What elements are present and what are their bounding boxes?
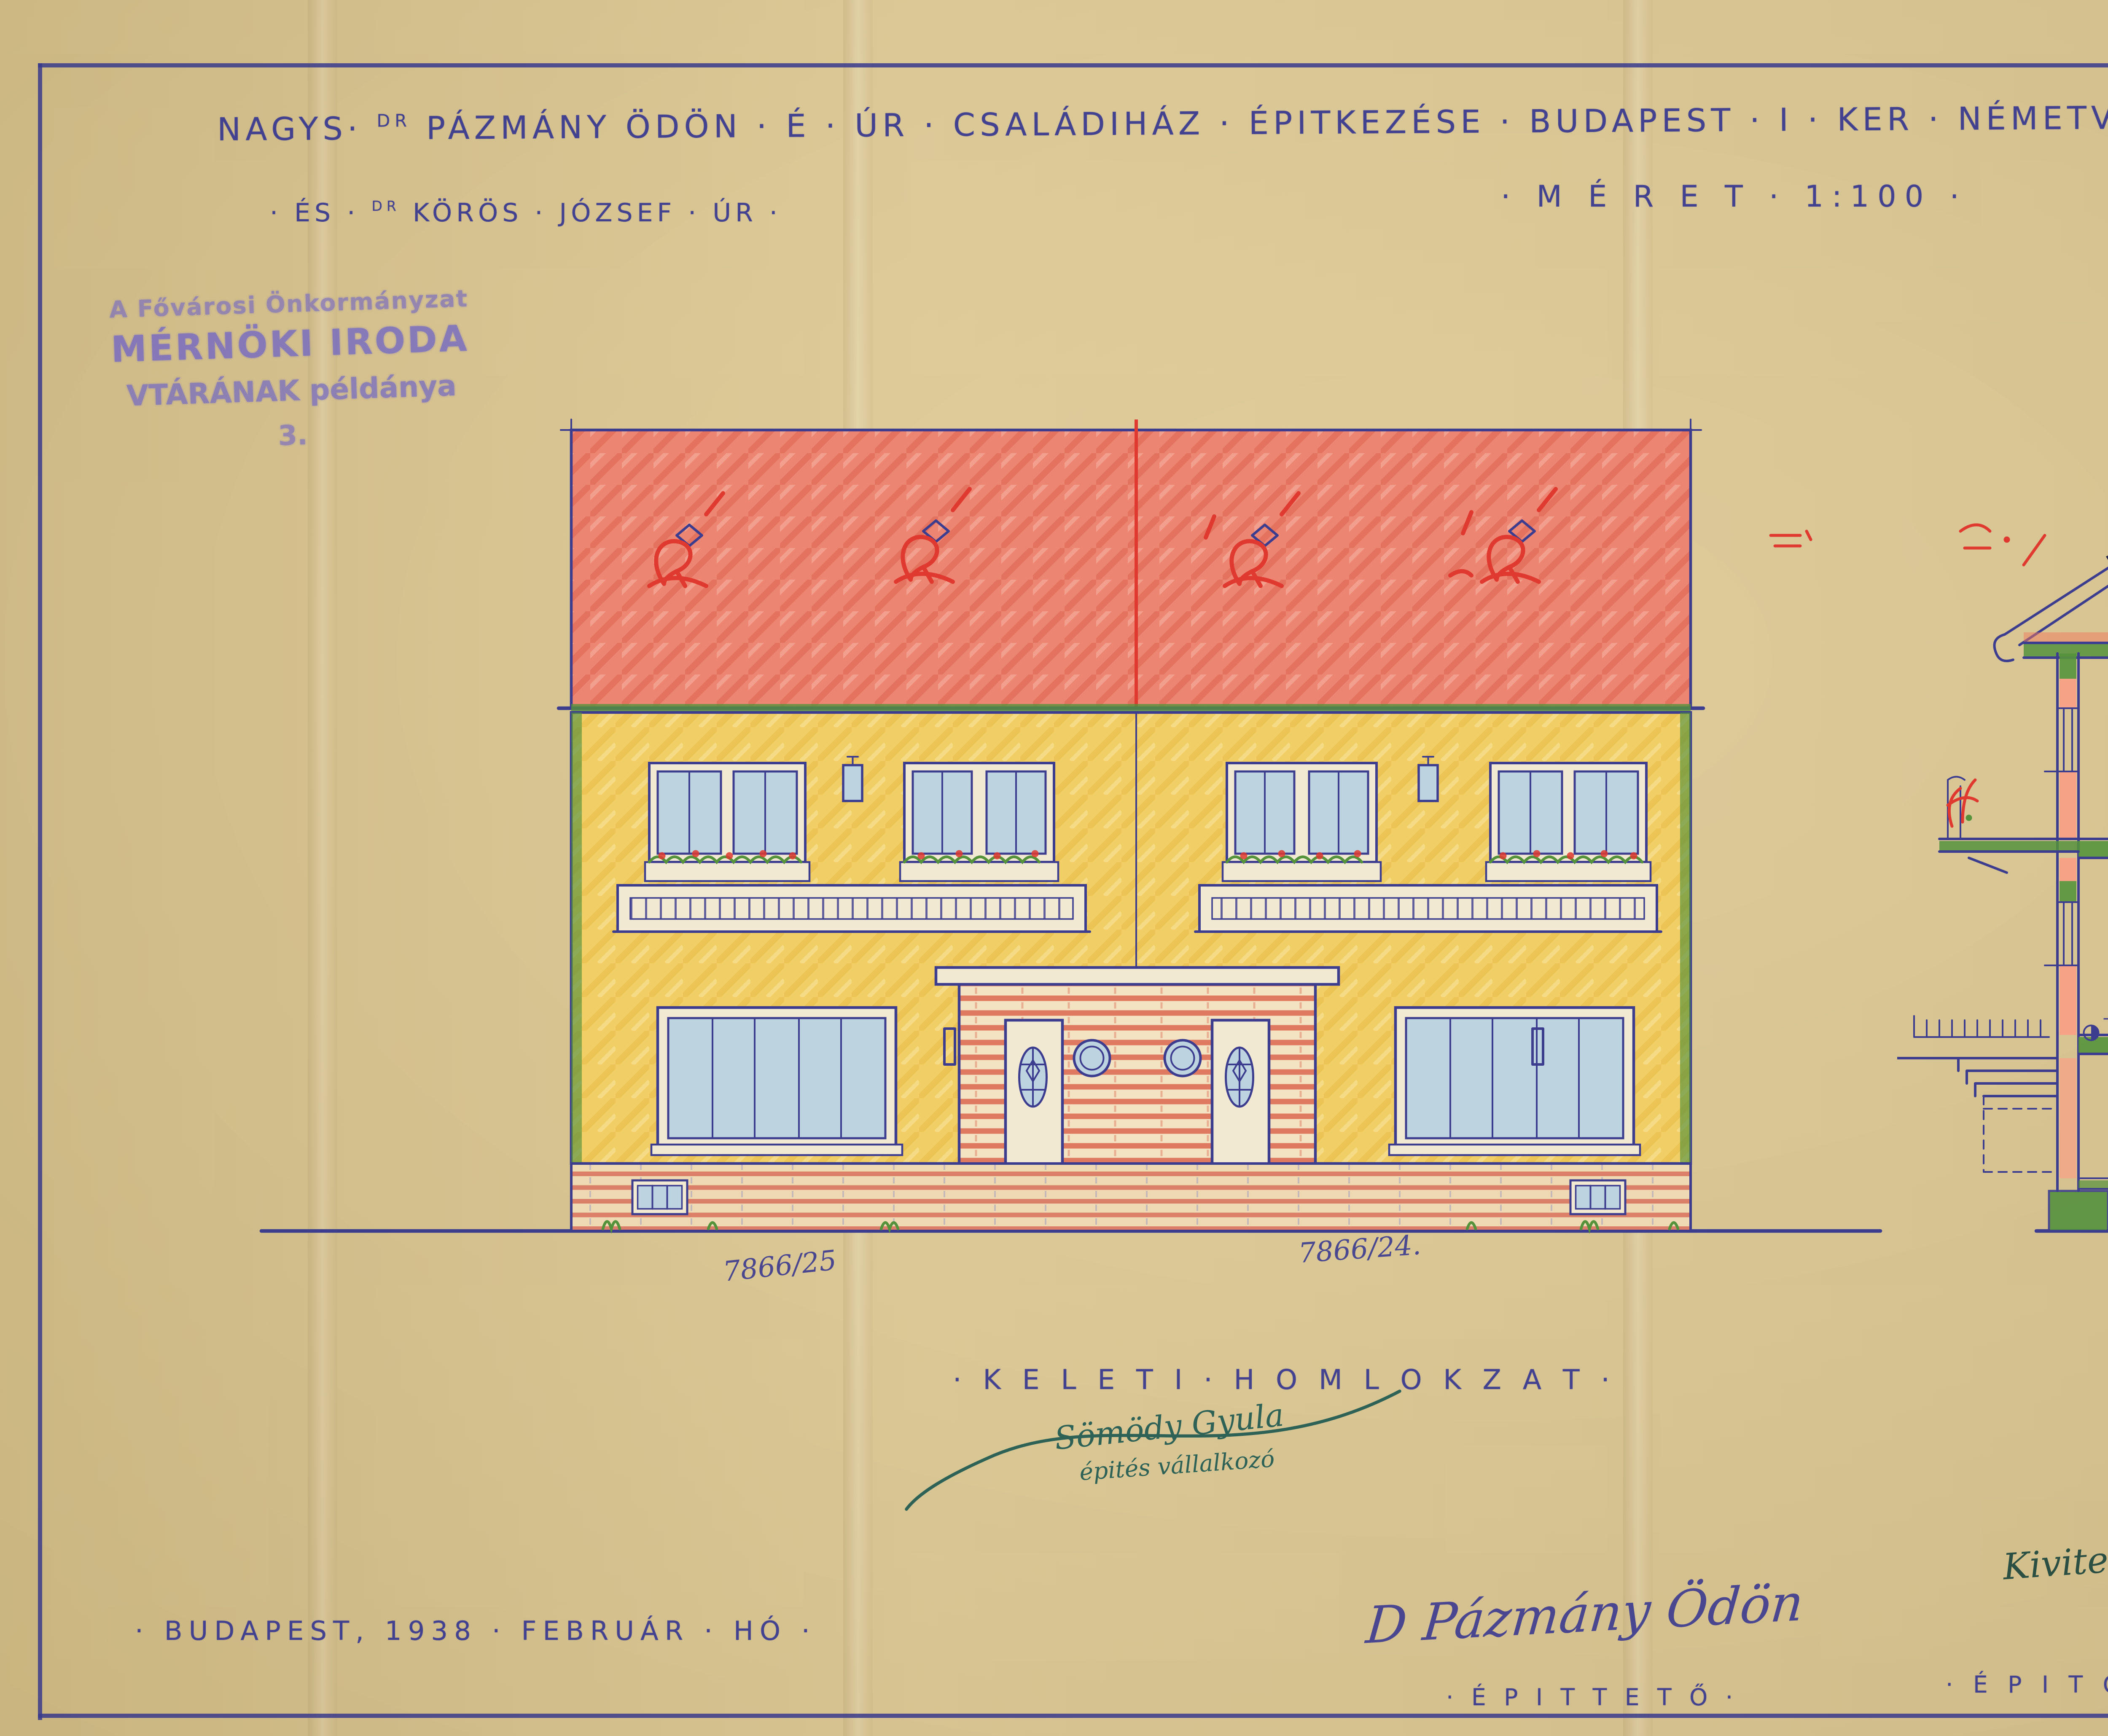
- client-role: · É P I T T E T Ő ·: [1446, 1684, 1738, 1712]
- red-check-mark: [1767, 527, 1813, 556]
- title-line-2: · ÉS · DR KÖRÖS · JÓZSEF · ÚR ·: [270, 198, 782, 228]
- title-line2-rest: KÖRÖS · JÓZSEF · ÚR ·: [413, 198, 782, 228]
- cross-section-drawing: 0.35. 3.00. 0.35 3.10. 0.30 +0.80 2.20. …: [1897, 337, 2108, 1286]
- master-builder-role: · É P I T Ő M E S T E R · ·: [1946, 1672, 2108, 1699]
- plinth: [571, 1164, 1691, 1231]
- window-upper-1: [649, 763, 805, 862]
- door-left: [1006, 1020, 1062, 1170]
- title-line-1: NAGYS· DR PÁZMÁNY ÖDÖN · É · ÚR · CSALÁD…: [217, 91, 2108, 149]
- door-right: [1212, 1020, 1269, 1170]
- footings: [2049, 1191, 2108, 1231]
- roof: [561, 419, 1701, 708]
- floor-slabs: [1939, 839, 2108, 1189]
- scale-label: · M É R E T · 1:100 ·: [1501, 181, 1968, 215]
- entry-porch: [1914, 1016, 2057, 1172]
- ground-window-left: [651, 1008, 902, 1155]
- balcony-right: [1195, 885, 1661, 932]
- responsible-note: Kivitelezésért felelős: [2002, 1521, 2108, 1590]
- balcony-left: [613, 885, 1090, 932]
- section-walls: [2045, 647, 2108, 1191]
- window-upper-4: [1490, 763, 1646, 862]
- office-stamp-line2: MÉRNÖKI IRODA: [32, 317, 548, 375]
- title-dr-1: DR: [376, 110, 411, 131]
- entrance-canopy: [936, 967, 1339, 984]
- title-main-text: PÁZMÁNY ÖDÖN · É · ÚR · CSALÁDIHÁZ · ÉPI…: [426, 94, 2108, 148]
- window-upper-2: [904, 763, 1054, 862]
- frame-bottom: [38, 1714, 2108, 1717]
- title-and: · ÉS ·: [270, 198, 359, 228]
- title-dr-2: DR: [371, 198, 400, 215]
- basement-window-left: [632, 1180, 687, 1214]
- east-elevation-drawing: [211, 390, 1939, 1317]
- title-honorific: NAGYS·: [217, 110, 362, 149]
- section-balcony: [1948, 777, 1977, 839]
- frame-top: [38, 63, 2108, 67]
- ground-window-right: [1389, 1008, 1640, 1155]
- drawing-sheet: NAGYS· DR PÁZMÁNY ÖDÖN · É · ÚR · CSALÁD…: [0, 0, 2108, 1736]
- date-line: · BUDAPEST, 1938 · FEBRUÁR · HÓ ·: [135, 1615, 816, 1646]
- client-signature: D Pázmány Ödön: [1364, 1573, 1806, 1655]
- scanned-blueprint-sheet: NAGYS· DR PÁZMÁNY ÖDÖN · É · ÚR · CSALÁD…: [0, 0, 2108, 1736]
- dimension-lines: [2084, 363, 2108, 1235]
- window-upper-3: [1227, 763, 1377, 862]
- dim-entry-level: +0.80: [2102, 1008, 2108, 1029]
- basement-window-right: [1570, 1180, 1625, 1214]
- red-scribbles: [1960, 525, 2045, 565]
- roof-truss: [1995, 392, 2108, 661]
- dimension-labels: 0.35. 3.00. 0.35 3.10. 0.30 +0.80 2.20. …: [2102, 349, 2108, 1150]
